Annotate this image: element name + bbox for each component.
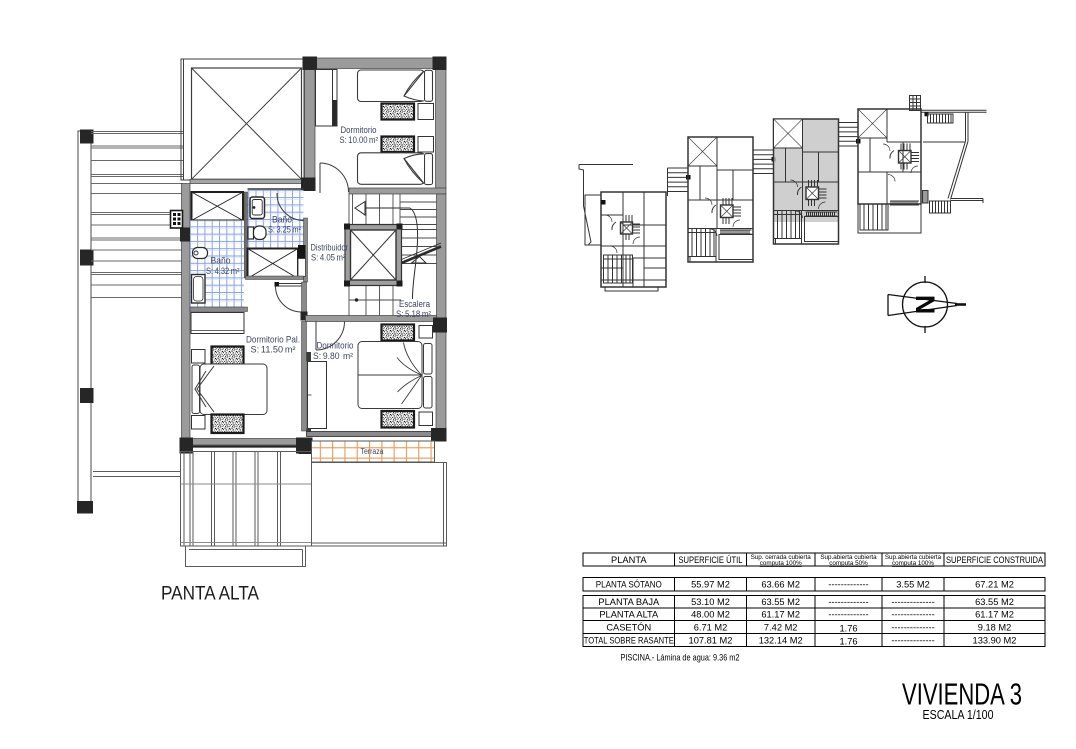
svg-text:63.66 M2: 63.66 M2 xyxy=(761,580,800,590)
svg-text:S: 5.18 m²: S: 5.18 m² xyxy=(396,309,431,319)
svg-text:SUPERFICIE ÚTIL: SUPERFICIE ÚTIL xyxy=(679,555,743,565)
svg-text:Escalera: Escalera xyxy=(399,299,430,309)
svg-text:55.97 M2: 55.97 M2 xyxy=(691,580,730,590)
svg-text:7.42 M2: 7.42 M2 xyxy=(764,623,798,633)
svg-text:107.81 M2: 107.81 M2 xyxy=(689,636,733,646)
svg-text:PISCINA.- Lámina de agua: 9.36: PISCINA.- Lámina de agua: 9.36 m2 xyxy=(621,653,740,664)
svg-text:PANTA ALTA: PANTA ALTA xyxy=(161,584,259,605)
svg-text:PLANTA SÓTANO: PLANTA SÓTANO xyxy=(596,580,662,590)
svg-text:computa 100%: computa 100% xyxy=(760,560,802,567)
svg-text:3.55 M2: 3.55 M2 xyxy=(896,580,930,590)
svg-text:--------------: -------------- xyxy=(891,610,934,620)
svg-text:S: 11.50 m²: S: 11.50 m² xyxy=(251,345,296,355)
svg-text:Baño: Baño xyxy=(211,256,231,266)
svg-text:53.10 M2: 53.10 M2 xyxy=(691,597,730,607)
svg-text:Dormitorio: Dormitorio xyxy=(317,341,354,351)
svg-text:S: 10.00 m²: S: 10.00 m² xyxy=(340,135,379,145)
svg-text:1.76: 1.76 xyxy=(839,637,857,647)
svg-text:S: 4.32 m²: S: 4.32 m² xyxy=(206,266,240,276)
svg-text:63.55 M2: 63.55 M2 xyxy=(975,597,1014,607)
svg-text:48.00 M2: 48.00 M2 xyxy=(691,610,730,620)
svg-text:S: 3.25 m²: S: 3.25 m² xyxy=(268,225,301,235)
svg-text:computa 50%: computa 50% xyxy=(829,560,868,567)
svg-text:CASETÓN: CASETÓN xyxy=(606,623,651,633)
svg-text:-------------: ------------- xyxy=(828,580,868,590)
svg-text:-------------: ------------- xyxy=(828,610,868,620)
svg-text:SUPERFICIE CONSTRUIDA: SUPERFICIE CONSTRUIDA xyxy=(946,555,1044,565)
svg-text:-------------: ------------- xyxy=(828,597,868,607)
svg-text:61.17 M2: 61.17 M2 xyxy=(975,610,1014,620)
svg-text:S: 9.80 m²: S: 9.80 m² xyxy=(313,351,353,361)
svg-text:PLANTA: PLANTA xyxy=(611,555,647,565)
svg-text:Baño: Baño xyxy=(272,215,292,225)
svg-text:S: 4.05 m²: S: 4.05 m² xyxy=(311,253,346,263)
svg-text:--------------: -------------- xyxy=(891,636,934,646)
svg-text:61.17 M2: 61.17 M2 xyxy=(761,610,800,620)
svg-text:1.76: 1.76 xyxy=(839,624,857,634)
svg-text:ESCALA 1/100: ESCALA 1/100 xyxy=(923,707,994,722)
svg-text:TOTAL SOBRE RASANTE: TOTAL SOBRE RASANTE xyxy=(584,636,674,646)
svg-text:9.18 M2: 9.18 M2 xyxy=(978,623,1012,633)
svg-text:Dormitorio: Dormitorio xyxy=(341,125,377,135)
svg-text:N: N xyxy=(911,295,941,315)
svg-text:6.71 M2: 6.71 M2 xyxy=(694,623,728,633)
svg-text:Terraza: Terraza xyxy=(361,447,384,456)
svg-text:PLANTA ALTA: PLANTA ALTA xyxy=(599,610,659,620)
svg-text:Distribuidor: Distribuidor xyxy=(311,243,349,253)
svg-text:63.55 M2: 63.55 M2 xyxy=(761,597,800,607)
svg-text:computa 100%: computa 100% xyxy=(892,560,934,567)
svg-text:133.90 M2: 133.90 M2 xyxy=(973,636,1017,646)
svg-text:--------------: -------------- xyxy=(891,597,934,607)
svg-text:--------------: -------------- xyxy=(891,623,934,633)
svg-text:132.14 M2: 132.14 M2 xyxy=(759,636,803,646)
svg-text:PLANTA BAJA: PLANTA BAJA xyxy=(598,597,660,607)
svg-text:67.21 M2: 67.21 M2 xyxy=(975,580,1014,590)
svg-text:Dormitorio Pal.: Dormitorio Pal. xyxy=(246,335,300,345)
